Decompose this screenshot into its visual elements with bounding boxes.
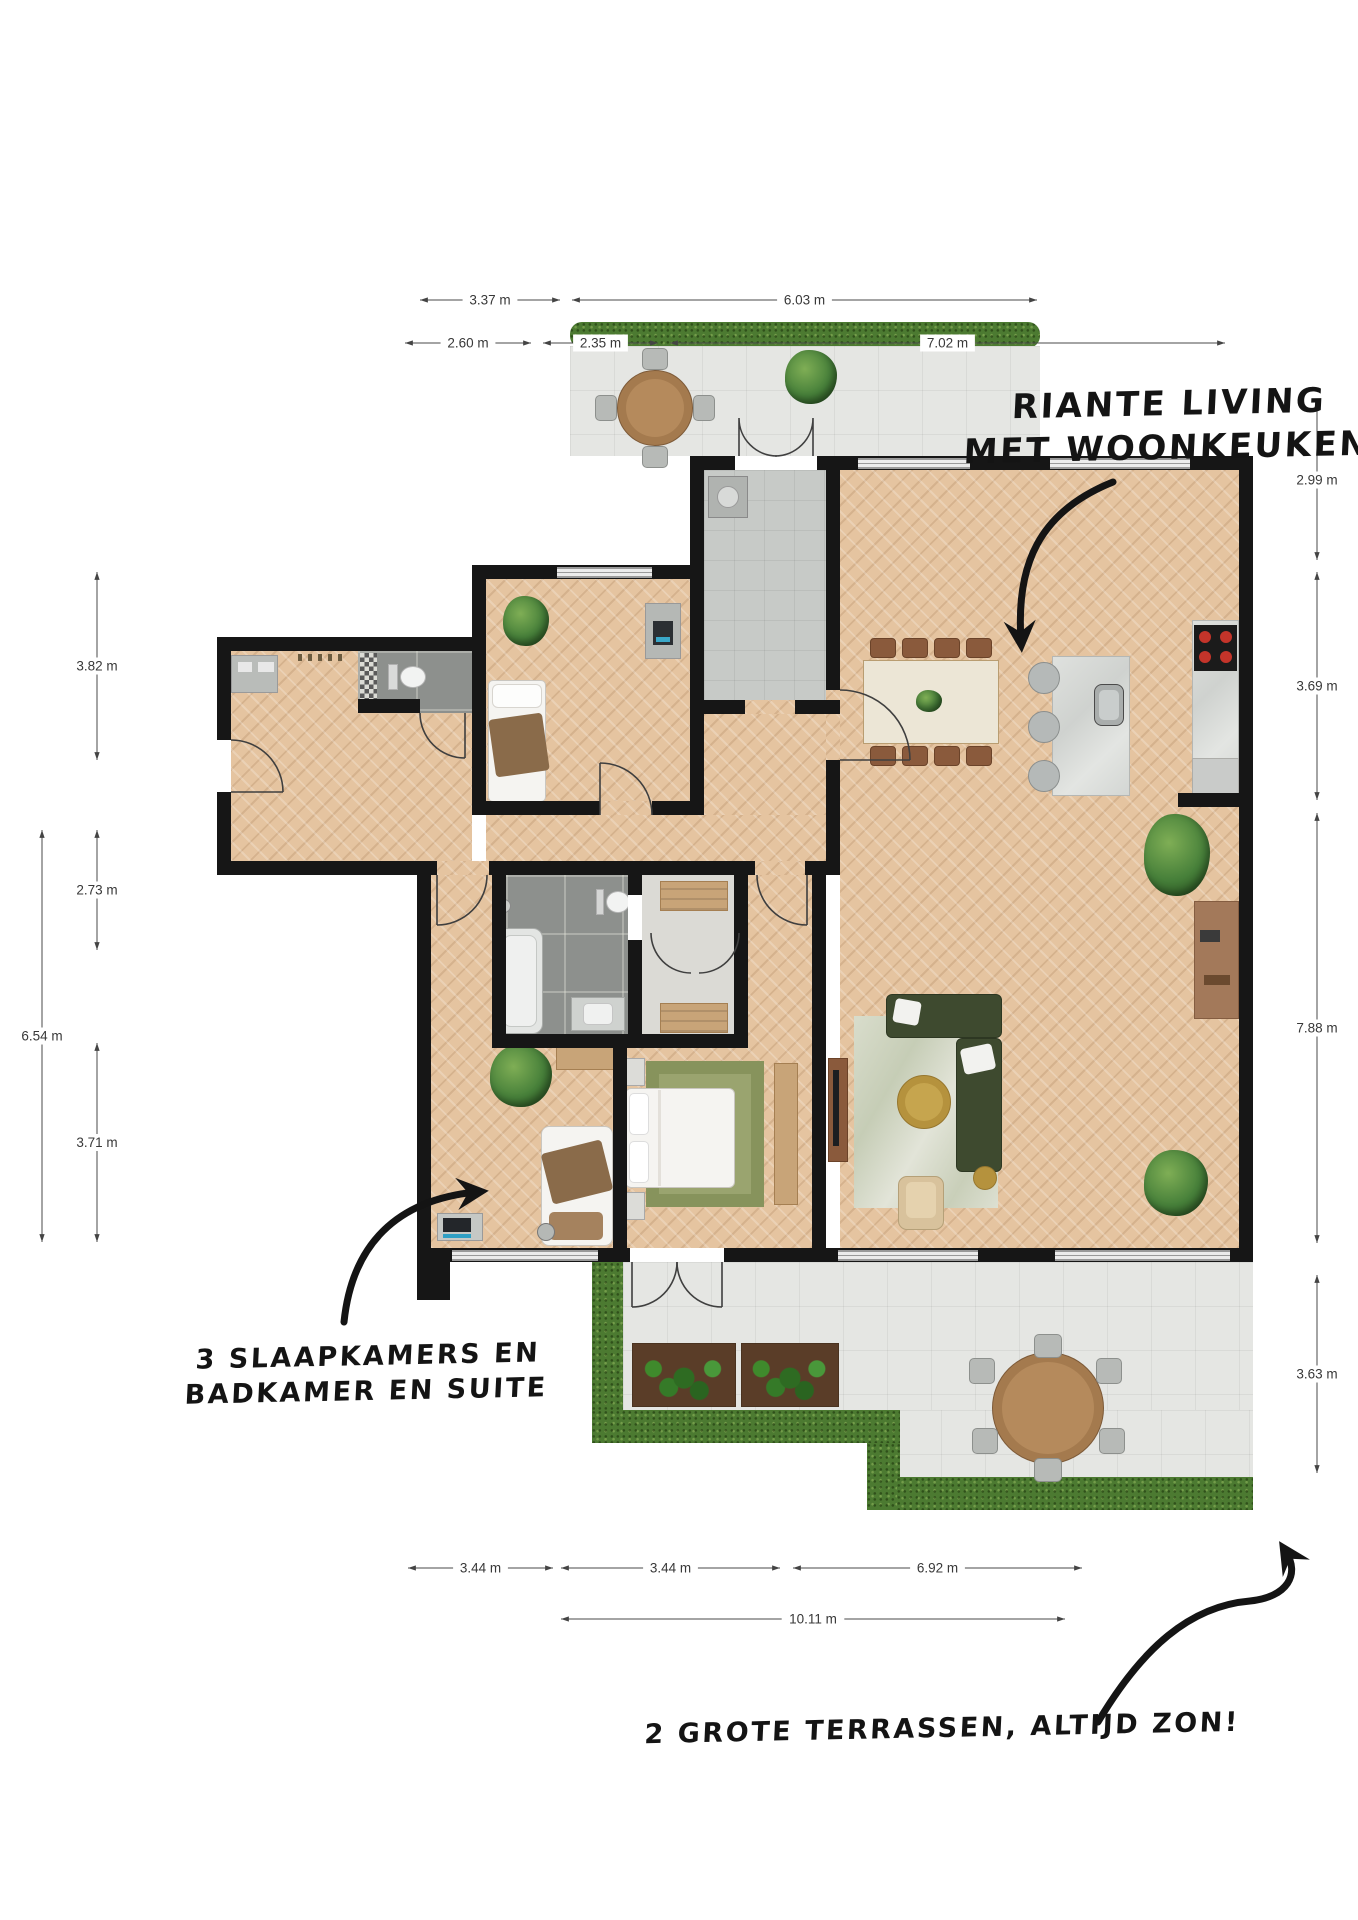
dimension-label: 6.92 m <box>917 1561 958 1576</box>
door-arc <box>840 690 910 760</box>
door-arc <box>739 418 777 456</box>
door-arc <box>420 713 465 758</box>
door-arc <box>231 740 283 792</box>
dimension-label: 6.03 m <box>784 293 825 308</box>
annotation-arrow-bedrooms <box>344 1192 476 1322</box>
door-arc <box>699 933 739 973</box>
annotation-arrow-terraces <box>1098 1552 1292 1722</box>
annotation-arrow-living <box>1020 482 1113 640</box>
dimension-label: 2.99 m <box>1296 473 1337 488</box>
dimension-label: 3.37 m <box>469 293 510 308</box>
label-riante-living-line2: MET WOONKEUKEN <box>963 422 1358 474</box>
label-slaapkamers: 3 SLAAPKAMERS EN BADKAMER EN SUITE <box>184 1336 550 1413</box>
dimension-label: 2.60 m <box>447 336 488 351</box>
door-arc <box>775 418 813 456</box>
dimension-label: 2.35 m <box>580 336 621 351</box>
dimension-label: 3.63 m <box>1296 1367 1337 1382</box>
dimension-label: 6.54 m <box>21 1029 62 1044</box>
dimension-label: 3.82 m <box>76 659 117 674</box>
dimension-label: 3.44 m <box>650 1561 691 1576</box>
floor-plan-canvas: RIANTE LIVING MET WOONKEUKEN 3 SLAAPKAME… <box>0 0 1358 1920</box>
dimension-label: 2.73 m <box>76 883 117 898</box>
door-arc <box>651 933 691 973</box>
dimension-label: 3.71 m <box>76 1135 117 1150</box>
dimension-label: 3.44 m <box>460 1561 501 1576</box>
dimension-label: 7.02 m <box>927 336 968 351</box>
label-riante-living-line1: RIANTE LIVING <box>965 379 1358 431</box>
door-arc <box>677 1262 722 1307</box>
label-riante-living: RIANTE LIVING MET WOONKEUKEN <box>963 379 1358 475</box>
dimension-label: 3.69 m <box>1296 679 1337 694</box>
door-arc <box>757 875 807 925</box>
door-arc <box>437 875 487 925</box>
plan-overlay: 3.37 m6.03 m2.60 m2.35 m7.02 m3.44 m3.44… <box>0 0 1358 1920</box>
dimension-label: 10.11 m <box>789 1612 837 1627</box>
door-arc <box>632 1262 677 1307</box>
door-arc <box>600 763 652 815</box>
dimension-label: 7.88 m <box>1296 1021 1337 1036</box>
